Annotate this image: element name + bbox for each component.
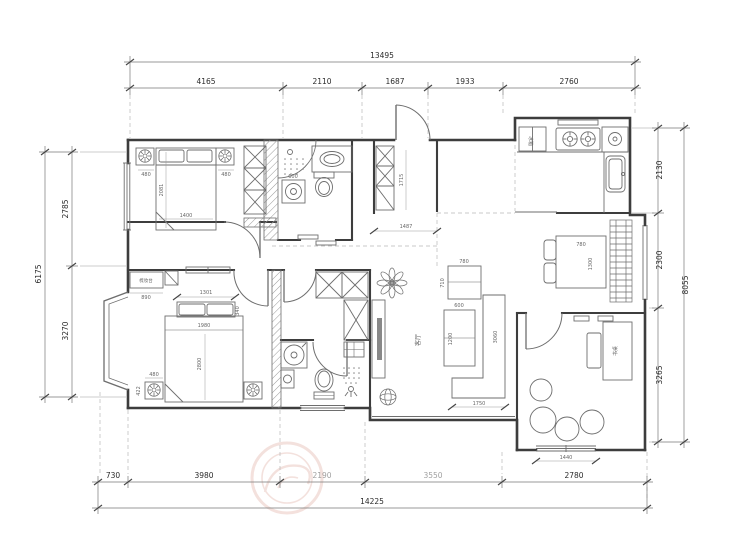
bench <box>587 333 601 368</box>
dim-top-seg4: 1933 <box>455 77 474 86</box>
dim-top-seg1: 4165 <box>196 77 215 86</box>
lamp-icon <box>247 384 259 396</box>
master-door <box>234 270 268 306</box>
dim-dining-l: 1300 <box>588 258 594 271</box>
dim-bottom-seg3: 2190 <box>312 471 331 480</box>
dim-washer: 600 <box>288 174 298 180</box>
dim-top-seg5: 2760 <box>559 77 578 86</box>
bath1-toilet <box>316 178 333 197</box>
dim-top-seg3: 1687 <box>385 77 404 86</box>
dim-nightstand2: 480 <box>221 172 231 178</box>
kitchen-corner-unit <box>602 127 628 152</box>
fridge-label: 冰箱 <box>527 136 534 146</box>
dim-entry-depth: 1715 <box>399 174 405 187</box>
dim-bed1-width: 1400 <box>180 213 193 219</box>
shower-spray-dots <box>284 158 304 175</box>
tv <box>377 318 382 360</box>
dresser-label: 梳妆台 <box>139 277 153 284</box>
dim-right-seg1: 2130 <box>655 160 664 179</box>
bedroom1-wardrobe <box>244 146 266 214</box>
floor-cushion <box>580 410 604 434</box>
master-bath-door <box>313 342 347 376</box>
dim-left-total: 6175 <box>34 264 43 283</box>
entry-door <box>396 105 430 140</box>
bath1-vanity-counter <box>312 146 352 172</box>
dim-entry-width: 1487 <box>400 224 413 230</box>
living-dims: 780 710 600 1200 3060 1750 客厅 <box>414 259 509 410</box>
lamp-icon <box>139 150 151 162</box>
master-bedroom-furniture <box>130 267 262 402</box>
dim-dresser: 890 <box>141 295 151 301</box>
living-room-label: 客厅 <box>414 334 422 346</box>
desk-label: 书桌 <box>612 346 619 356</box>
floor-plan-drawing: 13495 4165 2110 1687 1933 2760 730 3980 … <box>0 0 740 555</box>
dim-bottom-seg2: 3980 <box>194 471 213 480</box>
master-bedroom-dims: 梳妆台 890 1301 340 1980 2800 480 422 <box>130 277 241 400</box>
bedroom1-dims: 480 480 2081 1400 <box>138 152 234 228</box>
floor-cushion <box>530 407 556 433</box>
dining-window-seat <box>610 220 632 302</box>
chaise-sofa <box>452 295 505 398</box>
closet-wardrobes <box>316 272 368 340</box>
dim-chaise-l: 3060 <box>493 331 499 344</box>
dining-chair <box>544 263 556 283</box>
side-table <box>448 266 481 299</box>
plant-icon <box>377 268 407 298</box>
dim-top-total: 13495 <box>370 51 394 60</box>
bath2-basin <box>284 345 304 365</box>
bedroom1-furniture <box>136 146 266 230</box>
living-furniture <box>372 266 505 405</box>
dim-top-seg2: 2110 <box>312 77 331 86</box>
burner-icon <box>563 132 577 146</box>
range-hood <box>558 120 598 125</box>
leisure-window-dim: 1440 <box>532 455 600 464</box>
dim-right-total: 8055 <box>681 275 690 294</box>
dim-sidetable-d: 710 <box>440 278 446 288</box>
shower-head-icon <box>349 387 354 392</box>
bathroom1-fixtures <box>278 140 352 203</box>
dim-sofa-w: 600 <box>454 303 464 309</box>
dim-chain-left: 2785 3270 6175 <box>34 146 78 403</box>
dim-right-seg2: 2300 <box>655 250 664 269</box>
dim-pillow-row: 1301 <box>200 290 213 296</box>
dim-bed1-length: 2081 <box>159 184 165 197</box>
dim-left-seg1: 2785 <box>61 199 70 218</box>
dim-bottom-total: 14225 <box>360 497 384 506</box>
lamp-icon <box>219 150 231 162</box>
bath1-sliding-door <box>298 235 336 245</box>
dim-left-seg2: 3270 <box>61 321 70 340</box>
dim-right-seg3: 3265 <box>655 365 664 384</box>
dim-chain-bottom: 730 3980 2190 3550 2780 14225 <box>92 471 653 514</box>
dim-dining-w: 780 <box>576 242 586 248</box>
dim-nightstand1: 480 <box>141 172 151 178</box>
shower-head-icon <box>288 150 293 155</box>
dim-chaise-w: 1750 <box>473 401 486 407</box>
dim-sofa-l: 1200 <box>448 333 454 346</box>
decor-sphere-icon <box>380 389 396 405</box>
lamp-icon <box>148 384 160 396</box>
leisure-room-furniture <box>530 316 632 441</box>
kitchen-fixtures <box>517 120 628 213</box>
dim-leisure-window: 1440 <box>560 455 573 461</box>
floor-cushion <box>530 379 552 401</box>
dim-pillow-depth: 340 <box>235 306 241 316</box>
dim-bottom-seg5: 2780 <box>564 471 583 480</box>
burner-icon <box>581 132 595 146</box>
bathroom2-fixtures <box>281 342 364 399</box>
floor-plan-canvas: 13495 4165 2110 1687 1933 2760 730 3980 … <box>0 0 740 555</box>
entry-foyer <box>376 146 394 210</box>
dim-nd-master: 480 <box>149 372 159 378</box>
dining-chair <box>544 240 556 260</box>
hatched-walls <box>244 140 281 408</box>
floor-cushion <box>555 417 579 441</box>
dim-bed2-length: 2800 <box>197 358 203 371</box>
dim-chain-top: 13495 4165 2110 1687 1933 2760 <box>124 51 641 95</box>
dim-sidetable-w: 780 <box>459 259 469 265</box>
dim-bottom-seg4: 3550 <box>423 471 442 480</box>
bath2-shelf <box>281 370 294 388</box>
dim-bottom-seg1: 730 <box>106 471 121 480</box>
dim-chain-right: 2130 2300 3265 8055 <box>652 122 690 448</box>
dim-nd-depth: 422 <box>136 386 142 396</box>
leisure-door <box>526 313 562 349</box>
dim-bed2-width: 1980 <box>198 323 211 329</box>
closet-door <box>284 270 316 302</box>
